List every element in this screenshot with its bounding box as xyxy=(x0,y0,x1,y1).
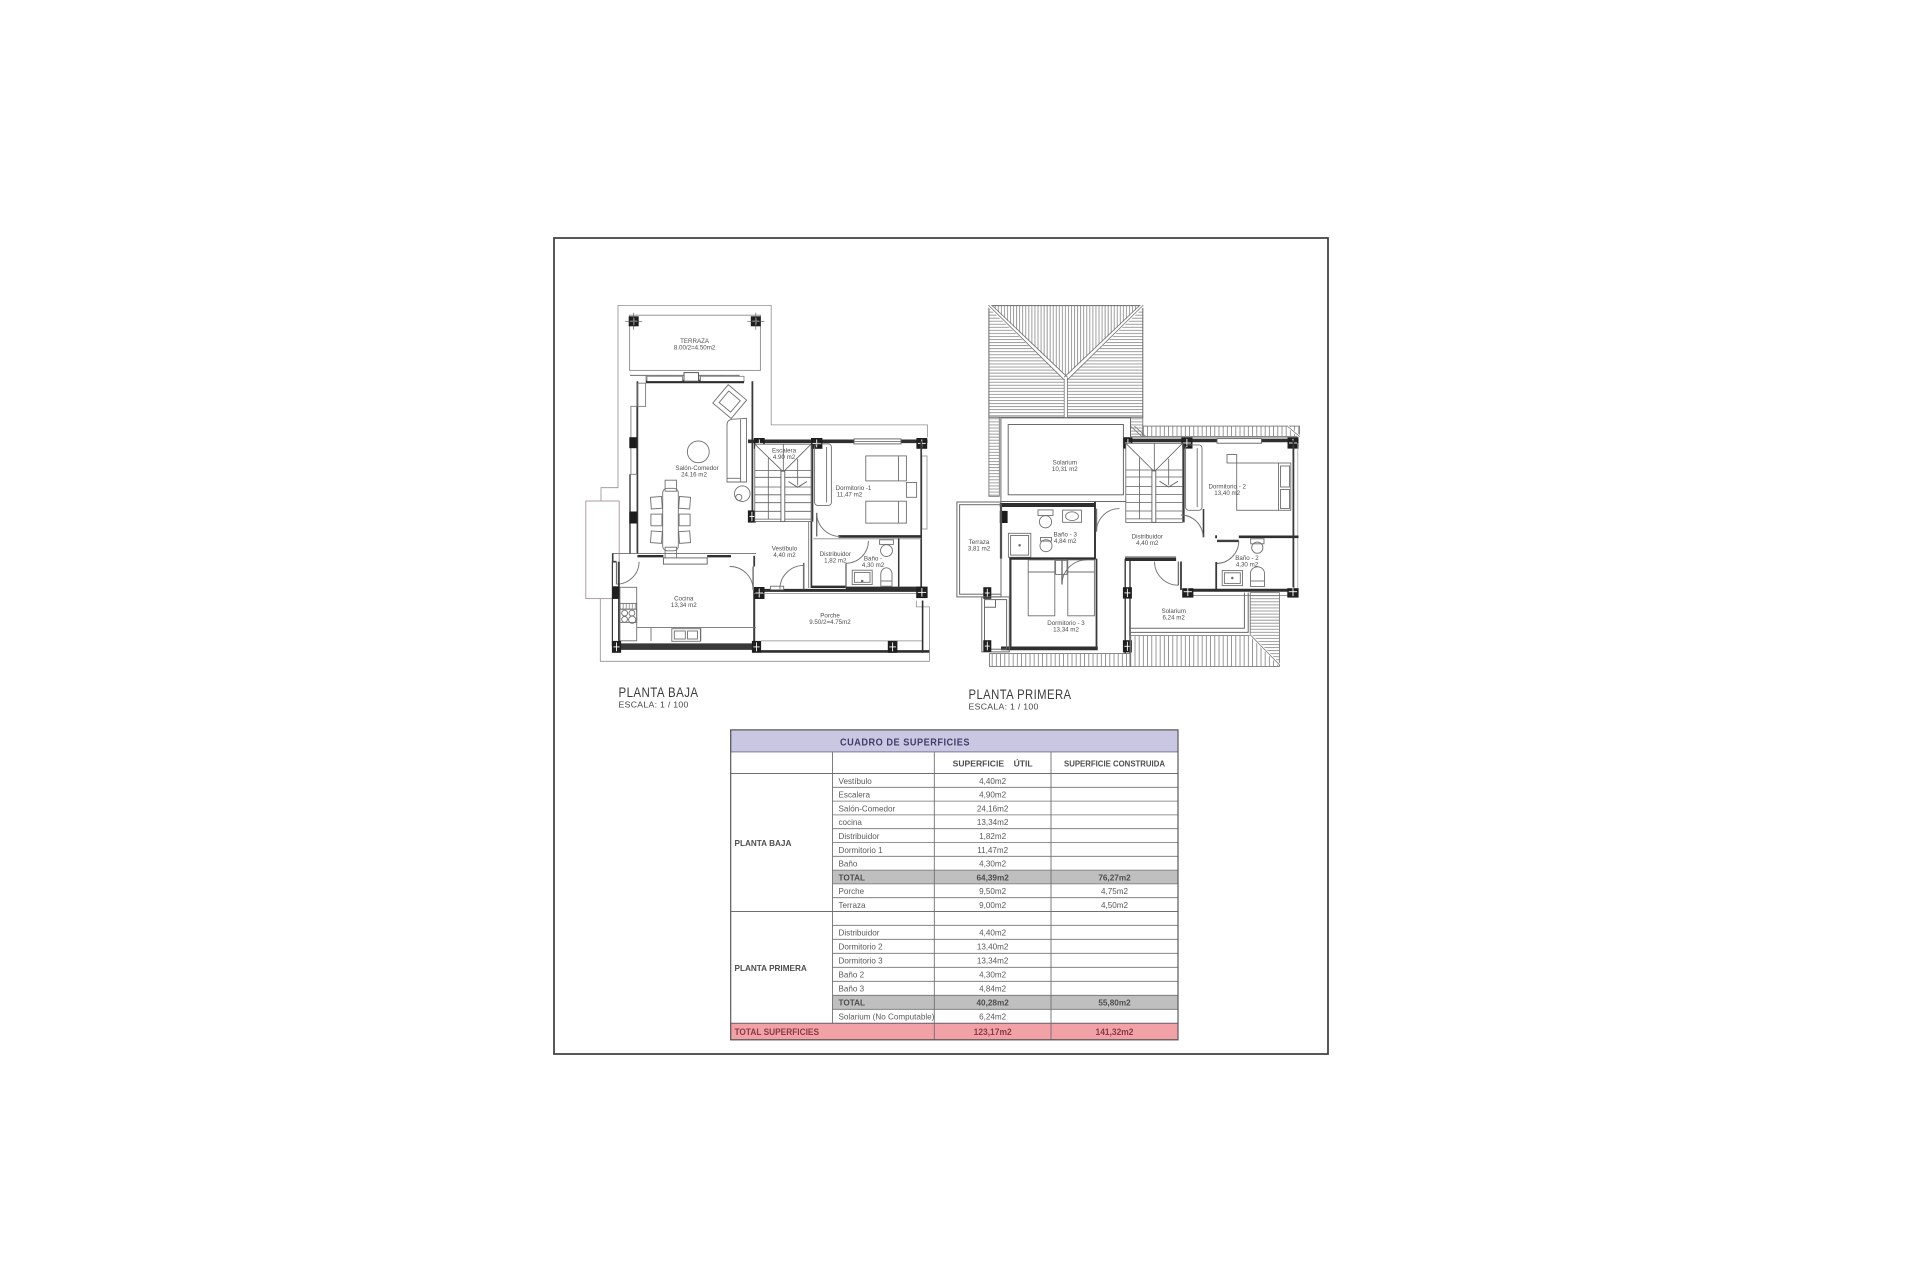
svg-text:13,34m2: 13,34m2 xyxy=(977,818,1009,827)
svg-text:64,39m2: 64,39m2 xyxy=(976,873,1009,882)
svg-text:24,16m2: 24,16m2 xyxy=(977,804,1009,813)
svg-text:4,84m2: 4,84m2 xyxy=(979,985,1006,994)
svg-text:141,32m2: 141,32m2 xyxy=(1096,1027,1134,1037)
svg-text:Dormitorio 3: Dormitorio 3 xyxy=(839,957,884,966)
svg-text:40,28m2: 40,28m2 xyxy=(976,999,1009,1008)
svg-text:Baño 2: Baño 2 xyxy=(839,971,865,980)
svg-text:24.16 m2: 24.16 m2 xyxy=(681,471,707,478)
svg-text:TOTAL SUPERFICIES: TOTAL SUPERFICIES xyxy=(735,1027,820,1037)
svg-text:4.90 m2: 4.90 m2 xyxy=(773,454,796,461)
svg-text:cocina: cocina xyxy=(839,818,863,827)
svg-text:PLANTA PRIMERA: PLANTA PRIMERA xyxy=(735,964,807,973)
svg-text:6,24m2: 6,24m2 xyxy=(979,1013,1006,1022)
svg-text:PLANTA PRIMERA: PLANTA PRIMERA xyxy=(969,687,1072,702)
svg-text:Baño 3: Baño 3 xyxy=(839,985,865,994)
svg-text:4,40m2: 4,40m2 xyxy=(979,777,1006,786)
svg-text:SUPERFICIE ÚTIL: SUPERFICIE ÚTIL xyxy=(953,758,1033,769)
svg-text:4,40 m2: 4,40 m2 xyxy=(1136,540,1159,547)
svg-text:Escalera: Escalera xyxy=(839,791,871,800)
svg-text:4,75m2: 4,75m2 xyxy=(1101,887,1128,896)
svg-text:13,34m2: 13,34m2 xyxy=(977,957,1009,966)
svg-text:TOTAL: TOTAL xyxy=(839,873,866,882)
svg-text:13,40m2: 13,40m2 xyxy=(977,943,1009,952)
svg-text:13,40 m2: 13,40 m2 xyxy=(1214,490,1240,497)
svg-text:11,47m2: 11,47m2 xyxy=(977,846,1008,855)
svg-text:4,30 m2: 4,30 m2 xyxy=(1236,561,1259,568)
svg-text:4,50m2: 4,50m2 xyxy=(1101,901,1128,910)
svg-text:13,34 m2: 13,34 m2 xyxy=(1053,626,1079,633)
svg-text:4,40 m2: 4,40 m2 xyxy=(773,552,796,559)
svg-text:Terraza: Terraza xyxy=(839,901,866,910)
svg-text:13,34 m2: 13,34 m2 xyxy=(671,602,697,609)
svg-text:3,81 m2: 3,81 m2 xyxy=(968,545,991,552)
svg-text:Vestíbulo: Vestíbulo xyxy=(839,777,873,786)
svg-text:Dormitorio 2: Dormitorio 2 xyxy=(839,943,884,952)
svg-text:10,31 m2: 10,31 m2 xyxy=(1052,466,1078,473)
svg-text:4,90m2: 4,90m2 xyxy=(979,791,1006,800)
svg-text:Distribuidor: Distribuidor xyxy=(839,832,880,841)
svg-text:4,30 m2: 4,30 m2 xyxy=(862,562,885,569)
svg-text:ESCALA: 1 / 100: ESCALA: 1 / 100 xyxy=(619,699,689,709)
svg-text:55,80m2: 55,80m2 xyxy=(1098,999,1131,1008)
svg-text:Dormitorio 1: Dormitorio 1 xyxy=(839,846,884,855)
svg-text:PLANTA BAJA: PLANTA BAJA xyxy=(619,685,699,700)
svg-text:11,47 m2: 11,47 m2 xyxy=(837,491,863,498)
svg-text:Solarium (No Computable): Solarium (No Computable) xyxy=(839,1013,935,1022)
svg-text:1,82 m2: 1,82 m2 xyxy=(824,557,847,564)
svg-text:9,50m2: 9,50m2 xyxy=(979,887,1006,896)
svg-text:4,84 m2: 4,84 m2 xyxy=(1054,538,1077,545)
svg-text:1,82m2: 1,82m2 xyxy=(979,832,1006,841)
svg-text:76,27m2: 76,27m2 xyxy=(1098,873,1131,882)
svg-text:ESCALA: 1 / 100: ESCALA: 1 / 100 xyxy=(969,702,1039,712)
svg-text:8.00/2=4.50m2: 8.00/2=4.50m2 xyxy=(674,344,716,351)
svg-text:SUPERFICIE CONSTRUIDA: SUPERFICIE CONSTRUIDA xyxy=(1064,760,1165,769)
svg-text:Porche: Porche xyxy=(839,887,865,896)
svg-text:4,30m2: 4,30m2 xyxy=(979,860,1006,869)
svg-text:4,30m2: 4,30m2 xyxy=(979,971,1006,980)
svg-text:Salón-Comedor: Salón-Comedor xyxy=(839,804,896,813)
svg-text:123,17m2: 123,17m2 xyxy=(974,1027,1012,1037)
svg-text:4,40m2: 4,40m2 xyxy=(979,929,1006,938)
svg-text:PLANTA BAJA: PLANTA BAJA xyxy=(735,839,792,848)
svg-text:CUADRO DE SUPERFICIES: CUADRO DE SUPERFICIES xyxy=(840,737,970,749)
svg-text:Distribuidor: Distribuidor xyxy=(839,929,880,938)
svg-text:6,24 m2: 6,24 m2 xyxy=(1163,614,1186,621)
svg-text:Baño: Baño xyxy=(839,860,858,869)
svg-text:TOTAL: TOTAL xyxy=(839,999,866,1008)
svg-text:9,00m2: 9,00m2 xyxy=(979,901,1006,910)
svg-text:9.50/2=4.75m2: 9.50/2=4.75m2 xyxy=(809,619,851,626)
